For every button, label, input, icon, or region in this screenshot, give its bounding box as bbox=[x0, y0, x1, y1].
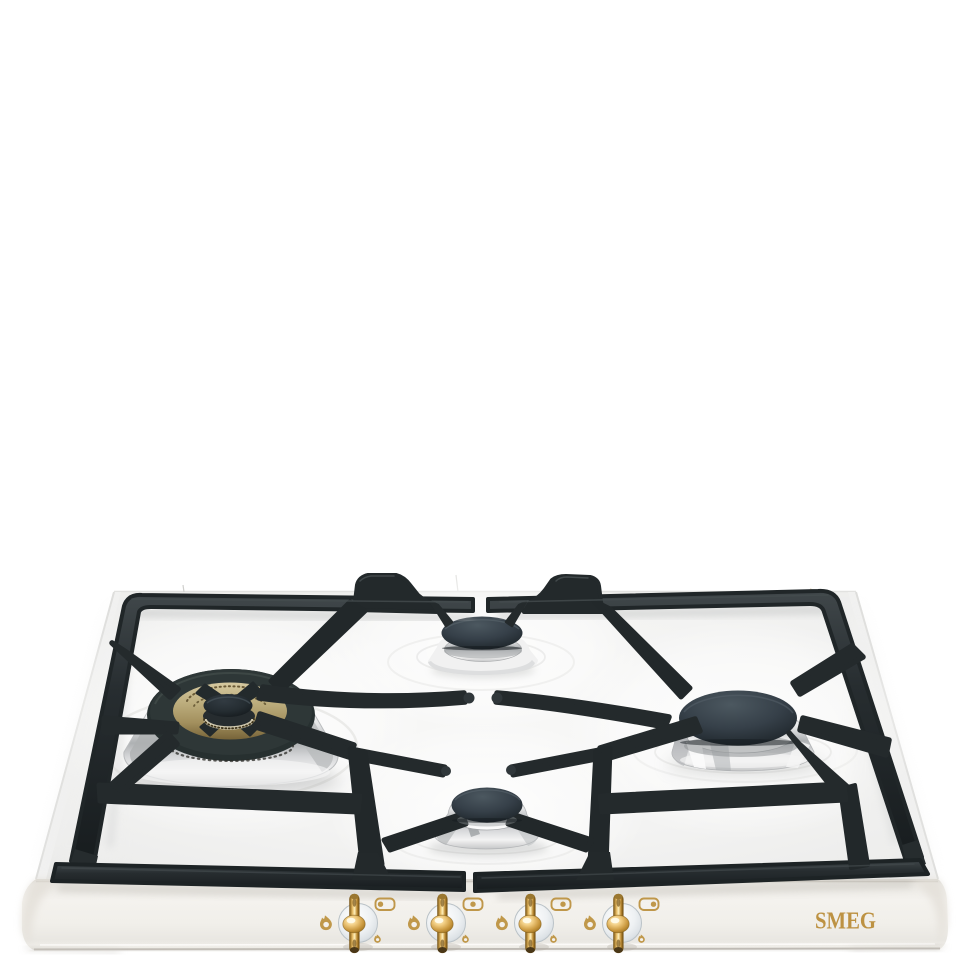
svg-text:SMEG: SMEG bbox=[815, 909, 876, 935]
